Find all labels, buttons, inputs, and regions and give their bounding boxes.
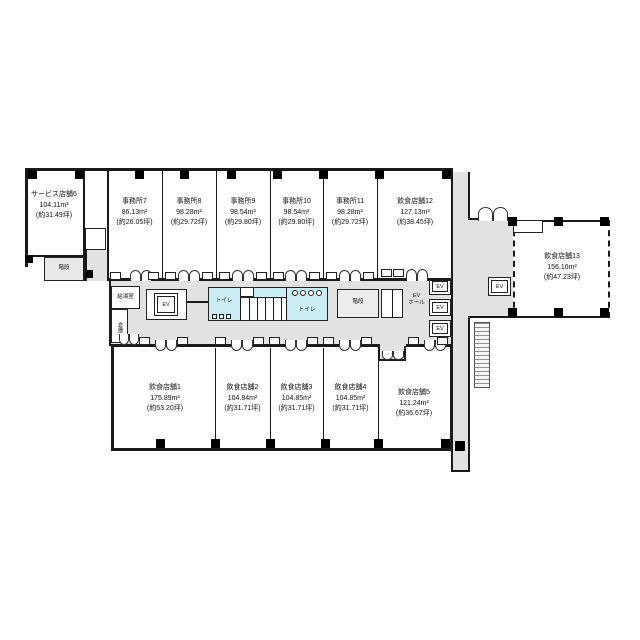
kitchenette-label: 給湯室 [111, 294, 140, 301]
double-door-icon [232, 270, 254, 281]
room-area: 121.24m² [378, 399, 450, 410]
corridor-right-widening [468, 220, 513, 316]
room-area: 104.84m² [215, 394, 270, 405]
column-marker [273, 170, 282, 179]
elevator-right: EV [488, 277, 511, 296]
toilet-closet [240, 287, 254, 297]
column-marker [508, 308, 517, 317]
wall-segment [468, 318, 470, 472]
room-office-8: 事務所8 98.28m² (約29.72坪) [162, 197, 216, 229]
wall-segment [468, 316, 513, 318]
room-area: 98.28m² [323, 208, 377, 219]
ev-hall-label: EV ホール [403, 293, 430, 306]
wall-segment [216, 171, 217, 278]
column-marker [156, 439, 165, 448]
column-marker [211, 439, 220, 448]
column-marker [600, 217, 609, 226]
room13-closet [513, 220, 543, 233]
column-marker [180, 170, 189, 179]
room-restaurant-2: 飲食店舗2 104.84m² (約31.71坪) [215, 383, 270, 415]
room-area: 98.54m² [270, 208, 323, 219]
wall-segment [25, 168, 453, 171]
column-marker [508, 217, 517, 226]
room-restaurant-3: 飲食店舗3 104.85m² (約31.71坪) [270, 383, 323, 415]
stall-divider [265, 298, 266, 320]
wall-segment [378, 361, 379, 448]
elevator-core: EV [154, 293, 178, 316]
sink-fixture [226, 314, 231, 319]
double-door-icon [155, 340, 177, 351]
wall-segment [468, 172, 470, 220]
room-tsubo: (約31.71坪) [323, 404, 378, 415]
toilet-divider [286, 287, 287, 321]
column-marker [28, 170, 37, 179]
room-tsubo: (約31.71坪) [215, 404, 270, 415]
room-tsubo: (約31.71坪) [270, 404, 323, 415]
room-tsubo: (約29.72坪) [162, 218, 216, 229]
toilet-left-label: トイレ [208, 298, 240, 305]
column-marker [441, 439, 450, 448]
column-marker [600, 308, 609, 317]
room-tsubo: (約29.80坪) [216, 218, 270, 229]
room-tsubo: (約29.72坪) [323, 218, 377, 229]
room-tsubo: (約31.49坪) [25, 211, 83, 222]
elevator-label: EV [432, 323, 448, 334]
shutter-box [139, 337, 150, 345]
elevator-bank-3: EV [429, 320, 451, 337]
column-marker [266, 439, 275, 448]
room-name: 飲食店舗4 [323, 383, 378, 394]
room-name: 事務所7 [107, 197, 162, 208]
wall-segment [107, 168, 109, 281]
shutter-box [309, 272, 320, 280]
room-tsubo: (約47.23坪) [515, 273, 609, 284]
room-area: 156.16m² [515, 263, 609, 274]
ev-hall-line1: EV [403, 293, 430, 300]
double-door-icon [285, 340, 307, 351]
room-area: 104.85m² [323, 394, 378, 405]
washbasin-fixture [292, 290, 298, 296]
room-name: サービス店舗6 [25, 190, 83, 201]
shutter-box [253, 337, 264, 345]
wall-segment [377, 171, 378, 278]
column-marker [135, 170, 144, 179]
room-tsubo: (約29.80坪) [270, 218, 323, 229]
shutter-box [110, 272, 121, 280]
double-door-icon [178, 270, 200, 281]
room-name: 飲食店舗1 [115, 383, 215, 394]
wall-segment [450, 345, 452, 450]
room-name: 事務所11 [323, 197, 377, 208]
stall-divider [273, 298, 274, 320]
double-door-icon [478, 207, 508, 221]
double-door-icon [339, 340, 361, 351]
room-area: 175.89m² [115, 394, 215, 405]
room-office-7: 事務所7 86.13m² (約26.05坪) [107, 197, 162, 229]
room-tsubo: (約38.45坪) [377, 218, 453, 229]
room-tsubo: (約26.05坪) [107, 218, 162, 229]
room-name: 事務所9 [216, 197, 270, 208]
column-marker [442, 170, 451, 179]
room-area: 104.11m² [25, 201, 83, 212]
washbasin-fixture [308, 290, 314, 296]
double-door-icon [406, 269, 428, 281]
column-marker [227, 170, 236, 179]
double-door-icon [339, 270, 361, 281]
wall-segment [109, 281, 111, 346]
ev-hall-line2: ホール [403, 300, 430, 307]
stall-divider [249, 298, 250, 320]
sink-fixture [212, 314, 217, 319]
shutter-box [177, 337, 188, 345]
room-office-11: 事務所11 98.28m² (約29.72坪) [323, 197, 377, 229]
stairs-center-label: 階段 [337, 299, 379, 306]
room-restaurant-1: 飲食店舗1 175.89m² (約53.20坪) [115, 383, 215, 415]
washbasin-fixture [316, 290, 322, 296]
room-restaurant-5: 飲食店舗5 121.24m² (約36.67坪) [378, 388, 450, 420]
shutter-box [202, 272, 213, 280]
shutter-box [273, 272, 284, 280]
room-restaurant-4: 飲食店舗4 104.85m² (約31.71坪) [323, 383, 378, 415]
column-marker [75, 170, 84, 179]
column-marker [554, 308, 563, 317]
wall-segment [111, 345, 114, 451]
room-tsubo: (約53.20坪) [115, 404, 215, 415]
double-door-icon [231, 340, 253, 351]
room-restaurant-13: 飲食店舗13 156.16m² (約47.23坪) [515, 252, 609, 284]
wall-segment [453, 470, 470, 472]
compartment-divider [392, 289, 393, 318]
elevator-label: EV [432, 281, 448, 292]
column-marker [85, 270, 93, 278]
column-marker [319, 170, 328, 179]
shutter-box [437, 337, 448, 345]
room-name: 事務所10 [270, 197, 323, 208]
column-marker [554, 217, 563, 226]
wall-segment [270, 171, 271, 278]
wall-segment [270, 348, 271, 448]
wall-segment [215, 348, 216, 448]
wall-segment [162, 171, 163, 278]
room-name: 飲食店舗3 [270, 383, 323, 394]
column-marker [455, 441, 465, 451]
shutter-box [307, 337, 318, 345]
washbasin-fixture [300, 290, 306, 296]
floor-plan: サービス店舗6 104.11m² (約31.49坪) 事務所7 86.13m² … [0, 0, 640, 640]
room-name: 飲食店舗13 [515, 252, 609, 263]
room-area: 98.28m² [162, 208, 216, 219]
wall-segment [187, 301, 208, 303]
room-area: 127.13m² [377, 208, 453, 219]
column-marker [375, 170, 384, 179]
shutter-box [361, 337, 372, 345]
stairs-left-label: 階段 [44, 265, 84, 272]
shutter-box [393, 269, 404, 277]
room-name: 飲食店舗5 [378, 388, 450, 399]
elevator-label: EV [491, 280, 508, 293]
sink-fixture [219, 314, 224, 319]
room-name: 事務所8 [162, 197, 216, 208]
room-tsubo: (約36.67坪) [378, 409, 450, 420]
room-area: 104.85m² [270, 394, 323, 405]
shutter-box [269, 337, 280, 345]
column-marker [321, 439, 330, 448]
room-restaurant-12: 飲食店舗12 127.13m² (約38.45坪) [377, 197, 453, 229]
shutter-box [381, 269, 392, 277]
shutter-box [256, 272, 267, 280]
room-area: 86.13m² [107, 208, 162, 219]
column-marker [25, 255, 33, 263]
elevator-label: EV [432, 302, 448, 313]
wall-segment [323, 171, 324, 278]
corridor-right-strip [453, 172, 468, 470]
shutter-box [219, 272, 230, 280]
shutter-box [323, 337, 334, 345]
wall-segment [25, 255, 85, 257]
toilet-stalls [241, 297, 286, 320]
elevator-label: EV [157, 296, 175, 313]
room-name: 飲食店舗12 [377, 197, 453, 208]
room-service-6: サービス店舗6 104.11m² (約31.49坪) [25, 190, 83, 222]
room-area: 98.54m² [216, 208, 270, 219]
room-office-10: 事務所10 98.54m² (約29.80坪) [270, 197, 323, 229]
room-name: 飲食店舗2 [215, 383, 270, 394]
office7-closet [85, 228, 106, 250]
shutter-box [148, 272, 159, 280]
column-marker [374, 439, 383, 448]
stall-divider [257, 298, 258, 320]
exterior-stairs [474, 322, 490, 388]
shutter-box [165, 272, 176, 280]
wall-segment [111, 448, 452, 451]
double-door-icon [285, 270, 307, 281]
double-door-icon [119, 334, 139, 345]
elevator-bank-2: EV [429, 299, 451, 316]
wall-segment [323, 348, 324, 448]
stall-divider [281, 298, 282, 320]
shutter-box [326, 272, 337, 280]
room-office-9: 事務所9 98.54m² (約29.80坪) [216, 197, 270, 229]
toilet-right-label: トイレ [288, 307, 326, 314]
shutter-box [408, 337, 419, 345]
wall-segment [25, 168, 28, 267]
shutter-box [363, 272, 374, 280]
double-door-icon [382, 351, 404, 360]
shutter-box [215, 337, 226, 345]
